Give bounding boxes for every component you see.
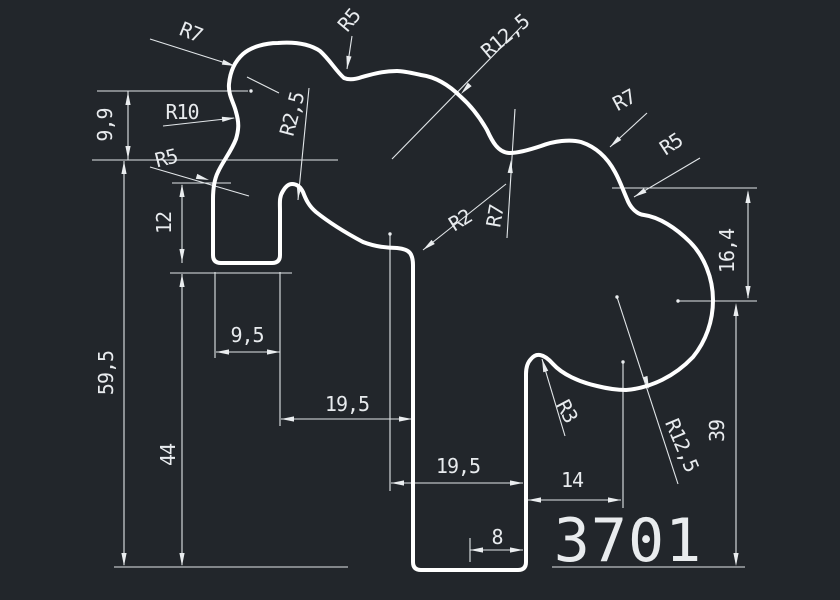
- arrowhead-icon: [125, 92, 130, 105]
- arrowhead-icon: [634, 188, 647, 197]
- arrowhead-icon: [346, 56, 351, 69]
- arrowhead-icon: [733, 553, 738, 566]
- arrowhead-icon: [267, 349, 280, 354]
- radius-label-r7-mid: R7: [483, 203, 507, 228]
- dimension-arrowheads: [121, 56, 750, 566]
- arrowhead-icon: [179, 184, 184, 197]
- arrowhead-icon: [510, 480, 523, 485]
- arrowhead-icon: [470, 547, 483, 552]
- arrowhead-icon: [179, 249, 184, 262]
- arrowhead-icon: [216, 349, 229, 354]
- arrowhead-icon: [222, 117, 235, 122]
- dimension-lines: [92, 91, 757, 567]
- definition-point-dot: [249, 89, 252, 92]
- dim-label-12: 12: [154, 212, 174, 234]
- arrowhead-icon: [733, 303, 738, 316]
- arrowhead-icon: [196, 174, 209, 180]
- dim-label-9-5: 9,5: [230, 325, 263, 345]
- arrowhead-icon: [121, 161, 126, 174]
- arrowhead-icon: [528, 497, 541, 502]
- arrowhead-icon: [461, 83, 472, 94]
- radius-label-r5-left: R5: [153, 146, 179, 171]
- dim-label-19-5-b: 19,5: [436, 456, 480, 476]
- arrowhead-icon: [281, 416, 294, 421]
- dim-label-14: 14: [561, 470, 583, 490]
- arrowhead-icon: [745, 286, 750, 299]
- definition-point-dot: [388, 232, 391, 235]
- radius-label-r10: R10: [165, 102, 198, 122]
- cad-drawing-canvas: 3701 R7R5R12,5R10R2,5R5R7R5R7R2R3R12,59,…: [0, 0, 840, 600]
- arrowhead-icon: [608, 497, 621, 502]
- dim-label-59-5: 59,5: [96, 351, 116, 395]
- dim-label-19-5-a: 19,5: [325, 394, 369, 414]
- arrowhead-icon: [399, 416, 412, 421]
- leader-line: [150, 167, 249, 196]
- arrowhead-icon: [179, 553, 184, 566]
- arrowhead-icon: [125, 146, 130, 159]
- definition-point-dot: [676, 299, 679, 302]
- arrowhead-icon: [510, 547, 523, 552]
- part-number: 3701: [554, 511, 703, 571]
- definition-point-dot: [615, 295, 618, 298]
- dim-label-44: 44: [158, 444, 178, 466]
- arrowhead-icon: [121, 553, 126, 566]
- dim-label-9-9: 9,9: [95, 108, 115, 141]
- dim-label-39: 39: [707, 420, 727, 442]
- arrowhead-icon: [179, 274, 184, 287]
- cad-geometry: [0, 0, 840, 600]
- leader-line: [507, 109, 515, 238]
- dim-label-8: 8: [491, 527, 502, 547]
- dim-label-16-4: 16,4: [717, 229, 737, 273]
- arrowhead-icon: [745, 190, 750, 203]
- definition-point-dot: [621, 360, 624, 363]
- arrowhead-icon: [391, 480, 404, 485]
